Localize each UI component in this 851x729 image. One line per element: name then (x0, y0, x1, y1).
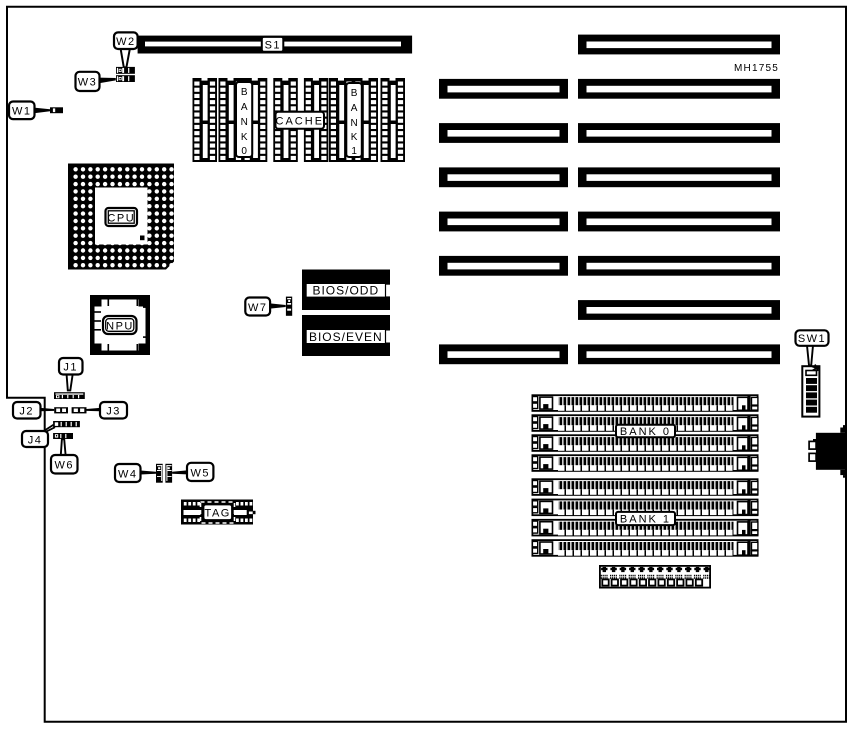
svg-text:J3: J3 (106, 406, 121, 418)
svg-text:SW1: SW1 (798, 333, 826, 345)
svg-text:BANK 0: BANK 0 (620, 426, 671, 438)
svg-text:W3: W3 (78, 77, 98, 89)
svg-text:BIOS/EVEN: BIOS/EVEN (309, 330, 383, 344)
svg-text:W6: W6 (54, 460, 74, 472)
svg-text:W7: W7 (248, 302, 268, 314)
svg-text:BIOS/ODD: BIOS/ODD (312, 284, 379, 298)
svg-text:W5: W5 (190, 468, 210, 480)
svg-text:CACHE: CACHE (276, 116, 325, 128)
svg-text:A: A (351, 103, 358, 114)
svg-text:J2: J2 (19, 406, 34, 418)
svg-text:S1: S1 (265, 40, 281, 52)
svg-text:J1: J1 (63, 362, 78, 374)
svg-text:BANK 1: BANK 1 (620, 513, 671, 525)
svg-text:W1: W1 (12, 106, 32, 118)
svg-text:W4: W4 (118, 469, 138, 481)
svg-text:CPU: CPU (107, 213, 135, 225)
svg-text:1: 1 (351, 146, 357, 157)
svg-text:W2: W2 (116, 36, 136, 48)
svg-text:NPU: NPU (106, 321, 134, 333)
svg-text:K: K (351, 132, 358, 143)
svg-text:B: B (351, 88, 358, 99)
svg-text:N: N (350, 118, 357, 129)
svg-text:N: N (241, 117, 248, 128)
svg-text:TAG: TAG (205, 508, 231, 520)
svg-text:MH1755: MH1755 (734, 63, 779, 74)
svg-text:J4: J4 (28, 435, 43, 447)
svg-text:A: A (241, 102, 248, 113)
svg-text:0: 0 (241, 146, 247, 157)
svg-text:K: K (241, 132, 248, 143)
svg-text:B: B (241, 87, 248, 98)
